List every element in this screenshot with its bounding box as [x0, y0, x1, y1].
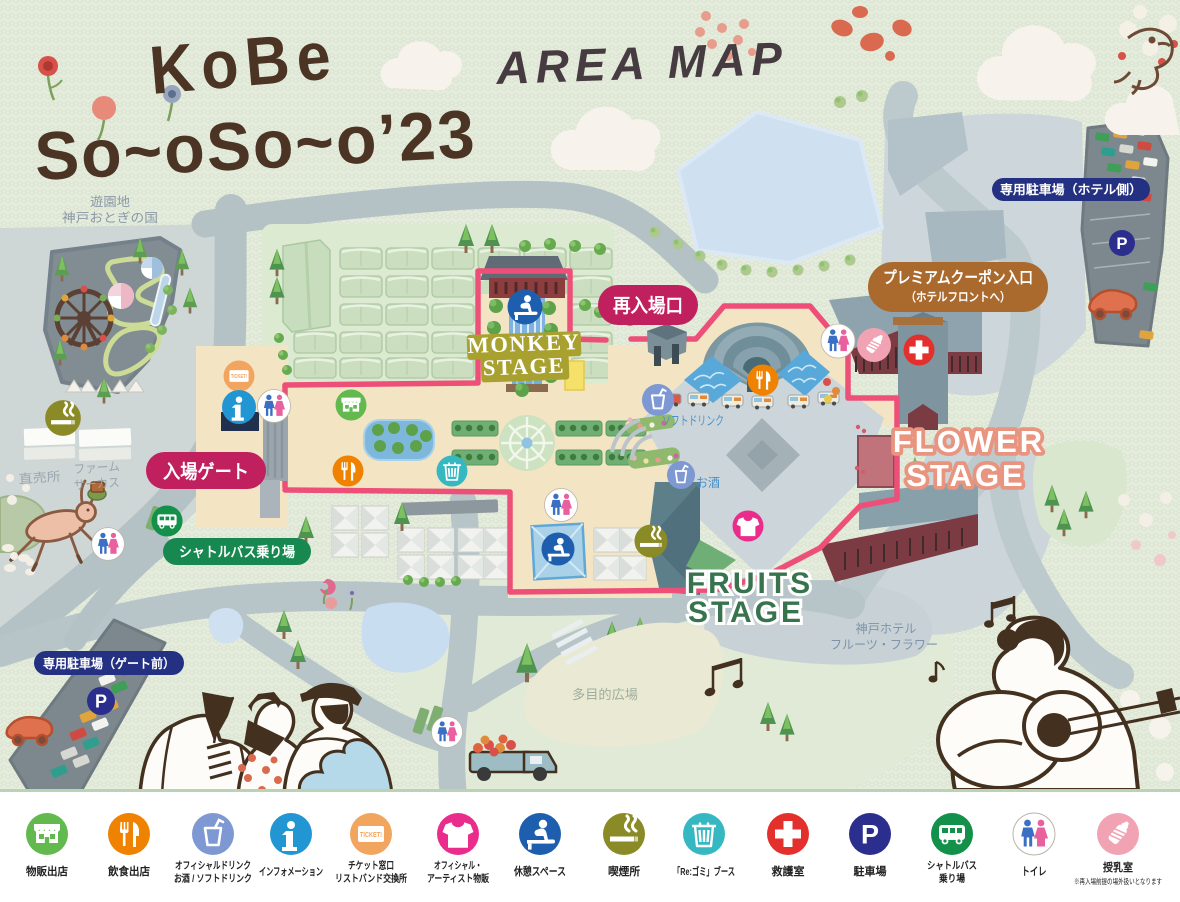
svg-text:アーティスト物販: アーティスト物販 [427, 872, 490, 885]
svg-text:チケット窓口: チケット窓口 [348, 859, 394, 872]
svg-text:喫煙所: 喫煙所 [608, 864, 640, 878]
svg-text:シャトルバス: シャトルバス [927, 860, 977, 872]
svg-text:お酒 / ソフトドリンク: お酒 / ソフトドリンク [174, 872, 252, 885]
svg-text:オフィシャルドリンク: オフィシャルドリンク [175, 860, 251, 872]
svg-text:トイレ: トイレ [1022, 865, 1047, 878]
svg-text:オフィシャル・: オフィシャル・ [434, 860, 482, 872]
svg-text:STAGE: STAGE [482, 353, 565, 381]
svg-text:神戸ホテル: 神戸ホテル [856, 622, 917, 636]
svg-text:フルーツ・フラワー: フルーツ・フラワー [830, 638, 938, 652]
svg-text:シャトルバス乗り場: シャトルバス乗り場 [179, 544, 295, 560]
svg-text:ソフトドリンク: ソフトドリンク [662, 414, 724, 428]
svg-text:物販出店: 物販出店 [26, 864, 68, 878]
svg-text:STAGE: STAGE [906, 458, 1026, 493]
svg-text:駐車場: 駐車場 [854, 864, 887, 878]
svg-text:再入場口: 再入場口 [613, 295, 683, 317]
svg-text:専用駐車場（ゲート前）: 専用駐車場（ゲート前） [43, 656, 175, 671]
svg-text:乗り場: 乗り場 [938, 872, 965, 885]
svg-text:遊園地: 遊園地 [90, 194, 131, 209]
svg-text:※再入場前提の場外扱いとなります: ※再入場前提の場外扱いとなります [1074, 876, 1162, 886]
svg-text:神戸おとぎの国: 神戸おとぎの国 [62, 211, 158, 225]
svg-text:リストバンド交換所: リストバンド交換所 [335, 872, 407, 885]
svg-text:多目的広場: 多目的広場 [572, 687, 638, 702]
svg-text:（ホテルフロントへ）: （ホテルフロントへ） [906, 289, 1011, 304]
svg-text:AREA MAP: AREA MAP [495, 32, 789, 94]
svg-text:インフォメーション: インフォメーション [259, 866, 323, 878]
svg-text:入場ゲート: 入場ゲート [163, 461, 249, 483]
svg-text:プレミアムクーポン入口: プレミアムクーポン入口 [883, 268, 1033, 287]
svg-text:「Re:ゴミ」ブース: 「Re:ゴミ」ブース [673, 865, 735, 878]
svg-text:救護室: 救護室 [772, 864, 805, 878]
svg-text:休憩スペース: 休憩スペース [513, 864, 566, 878]
svg-text:STAGE: STAGE [688, 596, 804, 629]
svg-text:直売所: 直売所 [18, 469, 61, 487]
svg-text:授乳室: 授乳室 [1103, 860, 1133, 874]
svg-text:お酒: お酒 [696, 476, 720, 490]
svg-text:専用駐車場（ホテル側）: 専用駐車場（ホテル側） [1000, 182, 1142, 197]
svg-text:FLOWER: FLOWER [893, 424, 1045, 459]
svg-text:飲食出店: 飲食出店 [107, 864, 150, 878]
